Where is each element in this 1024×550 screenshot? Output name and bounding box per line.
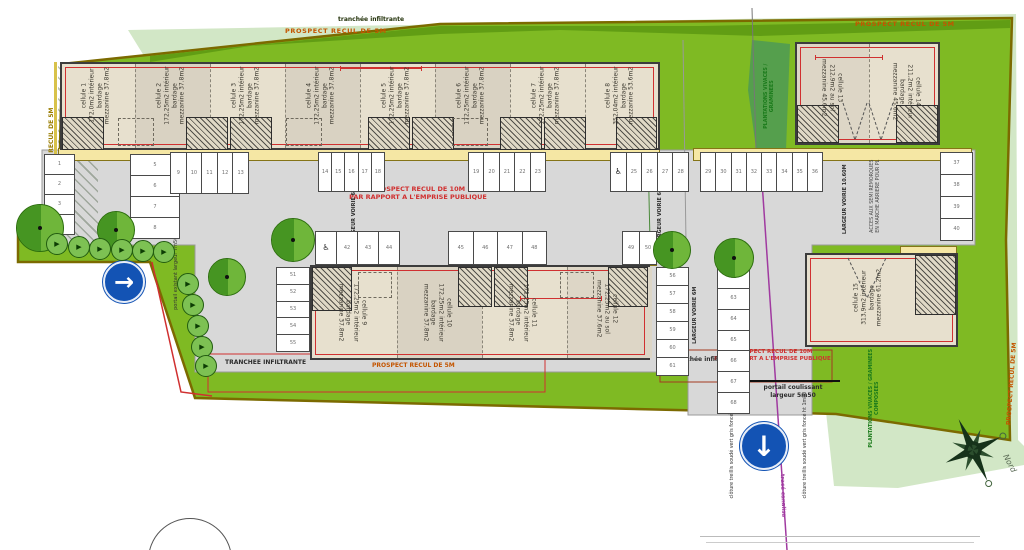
stall-number: 3 <box>58 202 61 207</box>
stall-number: 58 <box>669 310 675 315</box>
stall-number: 15 <box>335 170 341 175</box>
stall-number: 67 <box>730 380 736 385</box>
compass-north-label: Nord <box>1001 453 1018 475</box>
stall-number: 44 <box>386 246 392 251</box>
cell-label: cellule 14211,2m2 intérieurbardagemezzan… <box>890 46 921 138</box>
road-edge-line <box>700 536 980 537</box>
parking-stall: 68 <box>717 392 750 414</box>
tree-trunk-dot <box>670 248 674 252</box>
stall-number: 64 <box>730 317 736 322</box>
parking-stall: 37 <box>940 152 973 175</box>
parking-stall: 39 <box>940 196 973 219</box>
stall-number: 1 <box>58 162 61 167</box>
stall-number: 25 <box>631 170 637 175</box>
cell-label: cellule 11171,25m2 intérieurbardagemezza… <box>506 267 537 359</box>
parking-stall: 7 <box>130 196 180 218</box>
stall-number: 33 <box>766 170 772 175</box>
cell-divider <box>397 267 398 358</box>
mezzanine-dash-outline <box>118 118 154 146</box>
prospect-top-label: PROSPECT RECUL DE 5M <box>285 27 387 35</box>
loading-dock <box>458 267 492 307</box>
stall-number: 5 <box>153 163 156 168</box>
parking-stall: 8 <box>130 217 180 239</box>
parking-group-mid-row-3: 4950 <box>622 231 656 265</box>
stall-number: 39 <box>953 205 959 210</box>
shrub-icon: ▶ <box>153 241 175 263</box>
portail-coulissant-label: portail coulissant largeur 5m50 <box>748 384 838 399</box>
stall-number: 14 <box>322 170 328 175</box>
parking-stall: 58 <box>656 303 689 322</box>
stall-number: 20 <box>488 170 494 175</box>
parking-stall: 57 <box>656 285 689 304</box>
parking-stall: 53 <box>276 301 310 319</box>
stall-number: 37 <box>953 161 959 166</box>
parking-group-court-col-left: 5152535455 <box>276 267 310 351</box>
parking-stall: 20 <box>483 152 499 192</box>
tree-icon <box>208 258 246 296</box>
mezzanine-dash-outline <box>560 272 594 298</box>
parking-stall: 66 <box>717 350 750 372</box>
stall-number: 9 <box>177 171 180 176</box>
accessible-parking-icon: ♿ <box>615 168 622 176</box>
parking-stall: 65 <box>717 330 750 352</box>
parking-stall: 42 <box>336 231 358 265</box>
down-arrow-icon: ↓ <box>752 430 775 463</box>
stall-number: 13 <box>238 171 244 176</box>
cell-label: cellule 8352,04m2 intérieurbardagemezzan… <box>604 50 635 142</box>
parking-group-top-row-2: 1415161718 <box>318 152 384 192</box>
stall-number: 32 <box>751 170 757 175</box>
parking-stall: 48 <box>522 231 548 265</box>
stall-number: 10 <box>191 171 197 176</box>
cell-divider <box>360 64 361 148</box>
parking-stall: 63 <box>717 288 750 310</box>
shrub-icon: ▶ <box>68 236 90 258</box>
parking-stall: 17 <box>358 152 372 192</box>
cell-label: cellule 13212,9m2 au solmezzanine 45.6m2 <box>820 42 843 134</box>
parking-stall: 28 <box>672 152 689 192</box>
cell-label: cellule 4172,25m2 intérieurbardagemezzan… <box>305 50 336 142</box>
stall-number: 2 <box>58 182 61 187</box>
tree-icon <box>714 238 754 278</box>
parking-group-mid-row-2: 45464748 <box>448 231 546 265</box>
stall-number: 54 <box>290 324 296 329</box>
parking-stall: 67 <box>717 371 750 393</box>
right-arrow-icon: → <box>114 268 134 296</box>
tranchee-bottom-left-label: TRANCHEE INFILTRANTE <box>225 359 306 367</box>
stall-number: 56 <box>669 274 675 279</box>
parking-stall: 44 <box>378 231 400 265</box>
parking-stall: 40 <box>940 218 973 241</box>
parking-stall: 11 <box>201 152 218 194</box>
shrub-icon: ▶ <box>111 239 133 261</box>
parking-stall: 25 <box>626 152 643 192</box>
tree-trunk-dot <box>38 226 42 230</box>
accessible-parking-icon: ♿ <box>322 244 329 252</box>
stall-number: 21 <box>504 170 510 175</box>
shrub-icon: ▶ <box>46 233 68 255</box>
stall-number: 29 <box>705 170 711 175</box>
stall-number: 6 <box>153 184 156 189</box>
stall-number: 48 <box>531 246 537 251</box>
acces-label: ACCES AUX SEMI REMORQUES EN MARCHE ARRIE… <box>870 141 882 251</box>
shrub-icon: ▶ <box>132 240 154 262</box>
stall-number: 12 <box>222 171 228 176</box>
tree-icon <box>271 218 315 262</box>
parking-stall: 52 <box>276 284 310 302</box>
parking-stall: 47 <box>497 231 523 265</box>
one-way-right-sign: → <box>103 261 145 303</box>
parking-stall: ♿ <box>610 152 627 192</box>
stall-number: 53 <box>290 307 296 312</box>
largeur-voirie-label-4: LARGEUR VOIRIE 10.60M <box>842 154 849 244</box>
stall-number: 59 <box>669 328 675 333</box>
stall-number: 45 <box>458 246 464 251</box>
prospect-bottom-label: PROSPECT RECUL DE 5M <box>372 362 455 370</box>
tree-trunk-dot <box>225 275 229 279</box>
parking-stall: 38 <box>940 174 973 197</box>
portail-existant-label: portail existant largeur 7m50 <box>173 228 180 318</box>
stall-number: 7 <box>153 205 156 210</box>
stall-number: 50 <box>645 246 651 251</box>
parking-group-mid-row-1: ♿424344 <box>315 231 399 265</box>
tree-trunk-dot <box>114 228 118 232</box>
parking-stall: 61 <box>656 357 689 376</box>
acces-line2: EN MARCHE ARRIERE POUR PL <box>876 160 881 233</box>
parking-group-top-row-1: 910111213 <box>170 152 248 194</box>
parking-stall: 13 <box>232 152 249 194</box>
parking-stall: 33 <box>761 152 777 192</box>
parking-stall: 19 <box>468 152 484 192</box>
parking-stall: 46 <box>473 231 499 265</box>
stall-number: 36 <box>812 170 818 175</box>
parking-stall: 9 <box>170 152 187 194</box>
shrub-icon: ▶ <box>182 294 204 316</box>
parking-stall: 51 <box>276 267 310 285</box>
stall-number: 51 <box>290 273 296 278</box>
road-edge-line <box>706 542 974 543</box>
parking-stall: 29 <box>700 152 716 192</box>
plantations-top-label: PLANTATIONS VIVACES / GRAMINEES <box>764 51 776 141</box>
parking-stall: 12 <box>217 152 234 194</box>
shrub-icon: ▶ <box>89 238 111 260</box>
parking-stall: 59 <box>656 321 689 340</box>
parking-stall: 34 <box>776 152 792 192</box>
plantations-bottom-label: PLANTATIONS VIVACES / GRAMINEES COMPOSEE… <box>869 348 881 448</box>
cell-label: cellule 2172,25m2 intérieurbardagemezzan… <box>155 50 186 142</box>
parking-stall: 32 <box>746 152 762 192</box>
cell-label: cellule 3172,25m2 intérieurbardagemezzan… <box>230 50 261 142</box>
largeur-voirie-label-3: LARGEUR VOIRIE 6M <box>692 280 699 350</box>
stall-number: 34 <box>781 170 787 175</box>
parking-stall: 49 <box>622 231 640 265</box>
stall-number: 42 <box>344 246 350 251</box>
stall-number: 55 <box>290 341 296 346</box>
stall-number: 57 <box>669 292 675 297</box>
parking-stall: 64 <box>717 309 750 331</box>
stall-number: 66 <box>730 359 736 364</box>
parking-group-top-row-3: 1920212223 <box>468 152 545 192</box>
stall-number: 23 <box>535 170 541 175</box>
dock-door-marks <box>840 100 896 145</box>
stall-number: 22 <box>519 170 525 175</box>
tranchee-top-label: tranchée infiltrante <box>338 16 404 24</box>
parking-stall: 27 <box>657 152 674 192</box>
parking-group-right-col: 37383940 <box>940 152 973 240</box>
cell-label: cellule 12172,25m2 au solmezzanine 37.6m… <box>595 263 618 355</box>
parking-stall: 60 <box>656 339 689 358</box>
parking-stall: 18 <box>371 152 385 192</box>
stall-number: 43 <box>365 246 371 251</box>
parking-stall: 26 <box>641 152 658 192</box>
stall-number: 11 <box>206 171 212 176</box>
cell-label: cellule 6172,25m2 intérieurbardagemezzan… <box>455 50 486 142</box>
parking-stall: 56 <box>656 267 689 286</box>
parking-stall: 2 <box>44 174 75 195</box>
cell-label: cellule 10172,25m2 intérieurbardagemezza… <box>421 267 452 359</box>
stall-number: 28 <box>678 170 684 175</box>
parking-stall: 55 <box>276 334 310 352</box>
parking-group-court-col-right: 565758596061 <box>656 267 689 375</box>
stall-number: 38 <box>953 183 959 188</box>
stall-number: 16 <box>348 170 354 175</box>
parking-group-top-row-5: 2930313233343536 <box>700 152 822 192</box>
portail-line1: portail coulissant <box>764 384 823 391</box>
shrub-icon: ▶ <box>195 355 217 377</box>
prospect-top-right-label: PROSPECT RECUL DE 5M <box>855 20 955 28</box>
stall-number: 47 <box>507 246 513 251</box>
stall-number: 18 <box>375 170 381 175</box>
stall-number: 27 <box>662 170 668 175</box>
parking-stall: 21 <box>499 152 515 192</box>
parking-stall: 23 <box>530 152 546 192</box>
stall-number: 49 <box>628 246 634 251</box>
loading-dock <box>915 255 956 315</box>
stall-number: 8 <box>153 226 156 231</box>
loading-dock <box>412 117 454 150</box>
stall-number: 52 <box>290 290 296 295</box>
stall-number: 19 <box>473 170 479 175</box>
parking-stall: 43 <box>357 231 379 265</box>
shrub-icon: ▶ <box>187 315 209 337</box>
stall-number: 65 <box>730 338 736 343</box>
parking-stall: 36 <box>807 152 823 192</box>
stall-number: 30 <box>720 170 726 175</box>
parking-stall: 15 <box>331 152 345 192</box>
parking-stall: 10 <box>186 152 203 194</box>
cell-label: cellule 5172,25m2 intérieurbardagemezzan… <box>380 50 411 142</box>
parking-stall: 14 <box>318 152 332 192</box>
stall-number: 68 <box>730 401 736 406</box>
parking-stall: 54 <box>276 317 310 335</box>
parking-stall: 30 <box>715 152 731 192</box>
cell-label: cellule 9172,25m2 intérieurbardagemezzan… <box>336 267 367 359</box>
parking-stall: 16 <box>344 152 358 192</box>
acces-line1: ACCES AUX SEMI REMORQUES <box>870 160 875 233</box>
cloture-right-label: clôture treillis soudé vert gris foncé h… <box>803 385 809 505</box>
parking-group-top-row-4: ♿25262728 <box>610 152 688 192</box>
parking-group-drive-col: 62636465666768 <box>717 267 750 413</box>
stall-number: 60 <box>669 346 675 351</box>
parking-stall: 1 <box>44 154 75 175</box>
parking-stall: 31 <box>731 152 747 192</box>
parking-stall: 45 <box>448 231 474 265</box>
shrub-icon: ▶ <box>177 273 199 295</box>
stall-number: 46 <box>482 246 488 251</box>
stall-number: 61 <box>669 364 675 369</box>
stall-number: 26 <box>646 170 652 175</box>
tree-trunk-dot <box>732 256 736 260</box>
loading-dock <box>186 117 228 150</box>
tree-trunk-dot <box>291 238 295 242</box>
stall-number: 31 <box>735 170 741 175</box>
stall-number: 63 <box>730 296 736 301</box>
cell-label: cellule 15313,9m2 intérieurbardagemezzan… <box>852 252 883 344</box>
site-plan-canvas: ≡≡ → ↓ Nord PROSPECT RECUL DE 5M tranché… <box>0 0 1024 550</box>
stall-number: 35 <box>796 170 802 175</box>
parking-stall: 35 <box>792 152 808 192</box>
parking-stall: 22 <box>514 152 530 192</box>
cell-label: cellule 7172,25m2 intérieurbardagemezzan… <box>530 50 561 142</box>
sliding-gate <box>745 380 840 382</box>
cell-label: cellule 1172,0m2 intérieurbardagemezzani… <box>80 50 111 142</box>
stall-number: 17 <box>362 170 368 175</box>
recul10-line1: PROSPECT RECUL DE 10M <box>371 185 465 193</box>
parking-stall: ♿ <box>315 231 337 265</box>
stall-number: 40 <box>953 227 959 232</box>
tree-icon <box>653 231 691 269</box>
recul10-line2: PAR RAPPORT A L'EMPRISE PUBLIQUE <box>349 193 487 201</box>
